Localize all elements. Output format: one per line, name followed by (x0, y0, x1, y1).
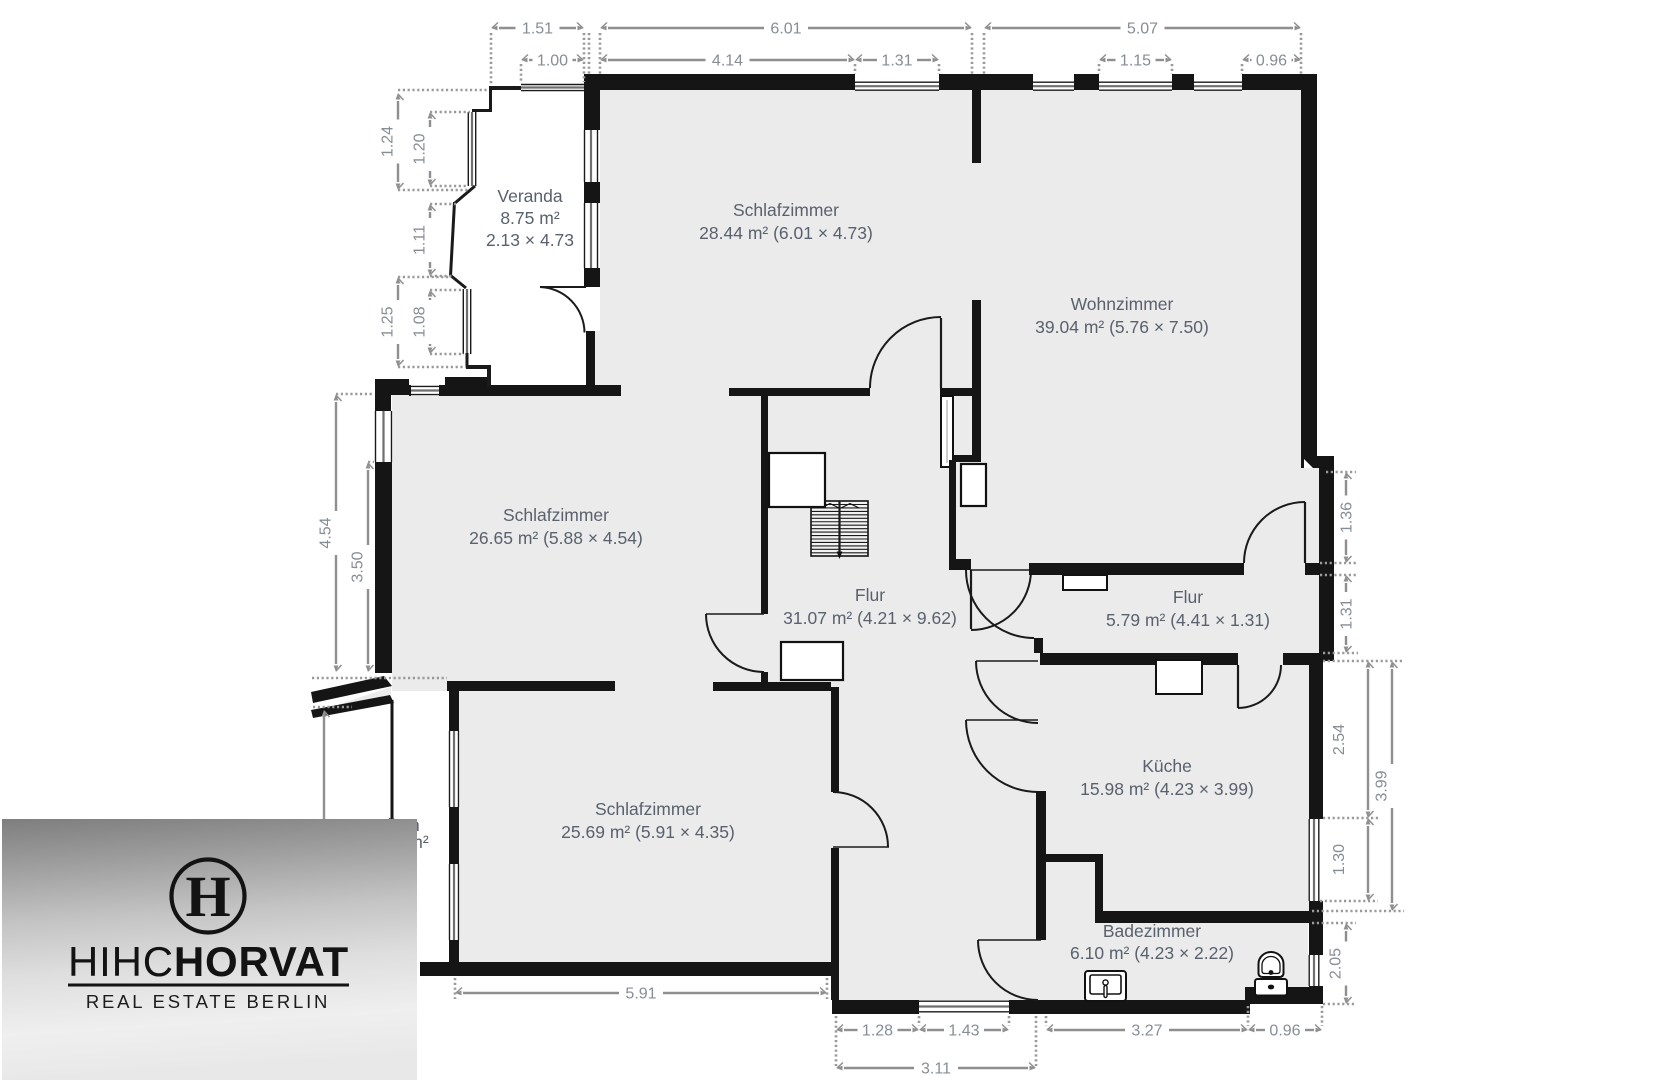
svg-text:Badezimmer: Badezimmer (1103, 921, 1201, 941)
svg-text:1.43: 1.43 (948, 1023, 979, 1040)
svg-text:39.04 m² (5.76 × 7.50): 39.04 m² (5.76 × 7.50) (1035, 317, 1209, 337)
svg-text:REAL ESTATE BERLIN: REAL ESTATE BERLIN (86, 991, 330, 1012)
svg-text:0.96: 0.96 (1269, 1023, 1300, 1040)
svg-text:Schlafzimmer: Schlafzimmer (733, 200, 839, 220)
svg-text:4.14: 4.14 (712, 53, 743, 70)
svg-text:5.79 m² (4.41 × 1.31): 5.79 m² (4.41 × 1.31) (1106, 610, 1270, 630)
svg-text:3.27: 3.27 (1131, 1023, 1162, 1040)
svg-text:25.69 m² (5.91 × 4.35): 25.69 m² (5.91 × 4.35) (561, 822, 735, 842)
svg-text:Schlafzimmer: Schlafzimmer (595, 799, 701, 819)
svg-text:4.54: 4.54 (318, 517, 335, 548)
svg-text:1.28: 1.28 (862, 1023, 893, 1040)
svg-text:Flur: Flur (855, 585, 885, 605)
svg-text:Veranda: Veranda (497, 186, 562, 206)
svg-text:26.65 m² (5.88 × 4.54): 26.65 m² (5.88 × 4.54) (469, 528, 643, 548)
svg-text:Wohnzimmer: Wohnzimmer (1071, 294, 1174, 314)
svg-text:3.99: 3.99 (1374, 770, 1391, 801)
svg-text:1.00: 1.00 (537, 53, 568, 70)
svg-text:1.36: 1.36 (1339, 502, 1356, 533)
svg-text:3.11: 3.11 (921, 1061, 951, 1078)
svg-text:6.10 m² (4.23 × 2.22): 6.10 m² (4.23 × 2.22) (1070, 943, 1234, 963)
svg-text:Küche: Küche (1142, 756, 1192, 776)
svg-text:Flur: Flur (1173, 587, 1203, 607)
svg-text:H: H (185, 864, 230, 929)
svg-text:15.98 m² (4.23 × 3.99): 15.98 m² (4.23 × 3.99) (1080, 779, 1254, 799)
svg-text:1.31: 1.31 (1339, 598, 1356, 629)
svg-text:5.91: 5.91 (625, 986, 656, 1003)
svg-text:5.07: 5.07 (1127, 21, 1158, 38)
svg-text:1.24: 1.24 (380, 126, 397, 157)
svg-text:1.20: 1.20 (412, 133, 429, 164)
svg-text:28.44 m² (6.01 × 4.73): 28.44 m² (6.01 × 4.73) (699, 223, 873, 243)
svg-text:1.31: 1.31 (881, 53, 912, 70)
svg-text:2.13 × 4.73: 2.13 × 4.73 (486, 230, 574, 250)
svg-text:Schlafzimmer: Schlafzimmer (503, 505, 609, 525)
svg-text:2.05: 2.05 (1328, 948, 1345, 979)
svg-text:HIHCHORVAT: HIHCHORVAT (68, 938, 349, 985)
svg-text:1.51: 1.51 (522, 21, 553, 38)
svg-text:1.25: 1.25 (380, 306, 397, 337)
svg-text:6.01: 6.01 (770, 21, 801, 38)
svg-text:2.54: 2.54 (1331, 724, 1348, 755)
svg-text:0.96: 0.96 (1256, 53, 1287, 70)
svg-text:1.15: 1.15 (1120, 53, 1151, 70)
svg-text:1.08: 1.08 (412, 306, 429, 337)
svg-text:3.50: 3.50 (350, 551, 367, 582)
svg-text:1.30: 1.30 (1331, 844, 1348, 875)
svg-text:31.07 m² (4.21 × 9.62): 31.07 m² (4.21 × 9.62) (783, 608, 957, 628)
svg-text:1.11: 1.11 (412, 225, 429, 255)
svg-text:8.75 m²: 8.75 m² (500, 208, 559, 228)
